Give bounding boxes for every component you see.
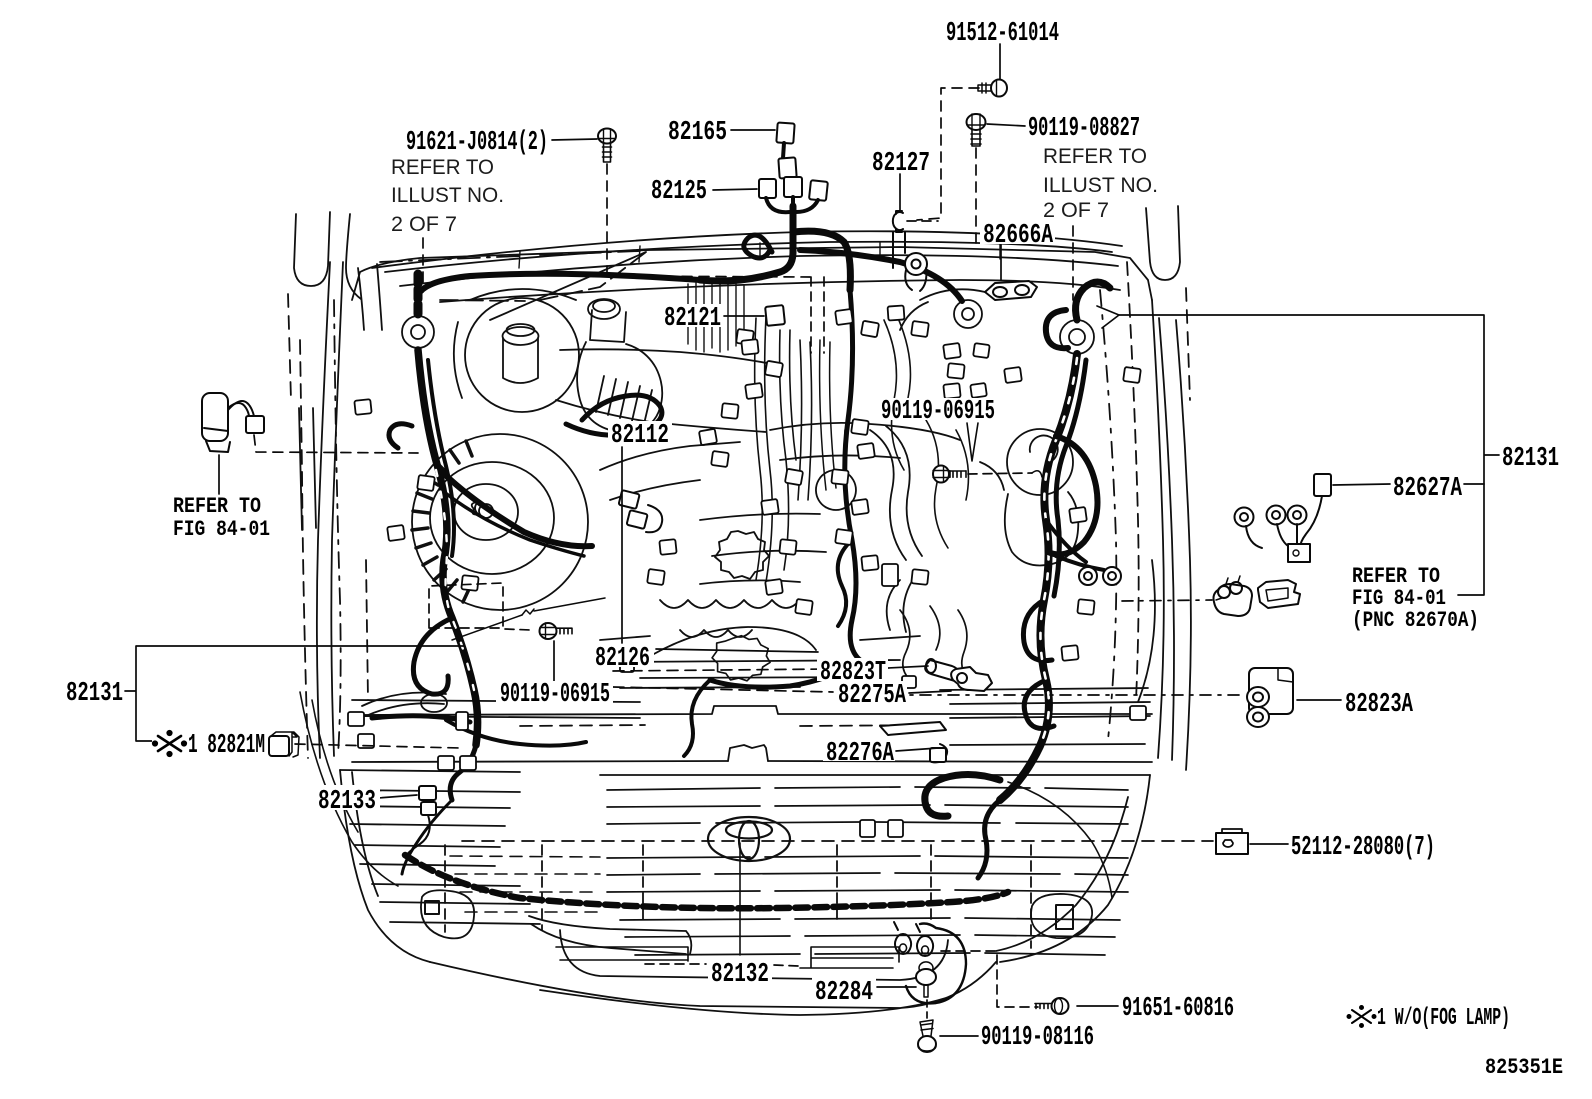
svg-text:82112: 82112	[611, 421, 669, 451]
svg-text:1 W/O(FOG LAMP): 1 W/O(FOG LAMP)	[1377, 1005, 1510, 1032]
svg-text:82127: 82127	[872, 149, 930, 179]
svg-text:82125: 82125	[651, 177, 707, 207]
svg-text:82666A: 82666A	[983, 221, 1054, 251]
svg-text:90119-08827: 90119-08827	[1028, 114, 1140, 144]
svg-text:82133: 82133	[318, 787, 376, 817]
svg-text:82276A: 82276A	[826, 739, 895, 769]
svg-text:90119-08116: 90119-08116	[981, 1023, 1094, 1053]
svg-text:(PNC 82670A): (PNC 82670A)	[1352, 608, 1479, 633]
svg-text:82126: 82126	[595, 644, 650, 674]
svg-text:ILLUST NO.: ILLUST NO.	[391, 183, 504, 207]
svg-text:82823A: 82823A	[1345, 690, 1414, 720]
svg-text:82165: 82165	[668, 118, 727, 148]
svg-text:82627A: 82627A	[1393, 474, 1463, 504]
svg-text:90119-06915: 90119-06915	[500, 680, 610, 710]
svg-text:REFER TO: REFER TO	[391, 155, 494, 179]
svg-text:52112-28080(7): 52112-28080(7)	[1291, 833, 1435, 863]
svg-text:FIG 84-01: FIG 84-01	[173, 517, 270, 542]
svg-text:1 82821M: 1 82821M	[188, 731, 265, 761]
svg-text:82132: 82132	[711, 960, 769, 990]
svg-text:825351E: 825351E	[1485, 1055, 1563, 1080]
svg-text:91621-J0814(2): 91621-J0814(2)	[406, 128, 548, 158]
svg-text:91651-60816: 91651-60816	[1122, 994, 1234, 1024]
svg-text:82275A: 82275A	[838, 681, 907, 711]
svg-text:2 OF 7: 2 OF 7	[1043, 198, 1109, 222]
svg-text:90119-06915: 90119-06915	[881, 397, 995, 427]
svg-text:82131: 82131	[66, 679, 123, 709]
svg-text:REFER TO: REFER TO	[173, 494, 261, 519]
svg-text:2 OF 7: 2 OF 7	[391, 212, 457, 236]
svg-text:82121: 82121	[664, 304, 721, 334]
svg-text:91512-61014: 91512-61014	[946, 19, 1059, 49]
svg-text:ILLUST NO.: ILLUST NO.	[1043, 173, 1158, 197]
svg-text:82131: 82131	[1502, 444, 1559, 474]
svg-text:82284: 82284	[815, 978, 873, 1008]
svg-text:REFER TO: REFER TO	[1043, 144, 1147, 168]
